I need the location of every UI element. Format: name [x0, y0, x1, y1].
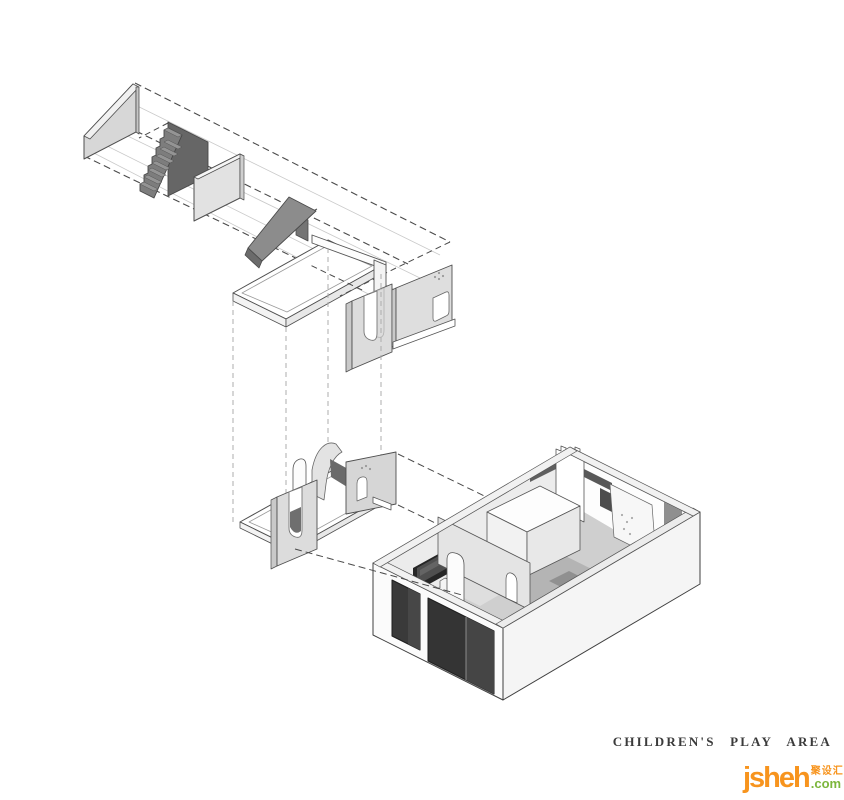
- window-wall: [392, 265, 455, 349]
- logo-wordmark: jsheh: [743, 763, 809, 793]
- jsheh-logo: jsheh 聚设汇 .com: [743, 763, 844, 793]
- logo-tld-text: .com: [811, 777, 844, 790]
- drawing-title: CHILDREN'S PLAY AREA: [600, 734, 832, 750]
- ramp-side-wall: [84, 84, 139, 159]
- structure-window-wall: [346, 452, 396, 514]
- structure-slotted-panel: [271, 480, 317, 569]
- exploded-axonometric-diagram: [0, 0, 844, 800]
- upper-exploded-assembly: [84, 84, 316, 268]
- slotted-panel: [346, 284, 392, 372]
- children-play-area-sheet: CHILDREN'S PLAY AREA jsheh 聚设汇 .com: [0, 0, 844, 800]
- play-structure-assembly: [240, 443, 396, 569]
